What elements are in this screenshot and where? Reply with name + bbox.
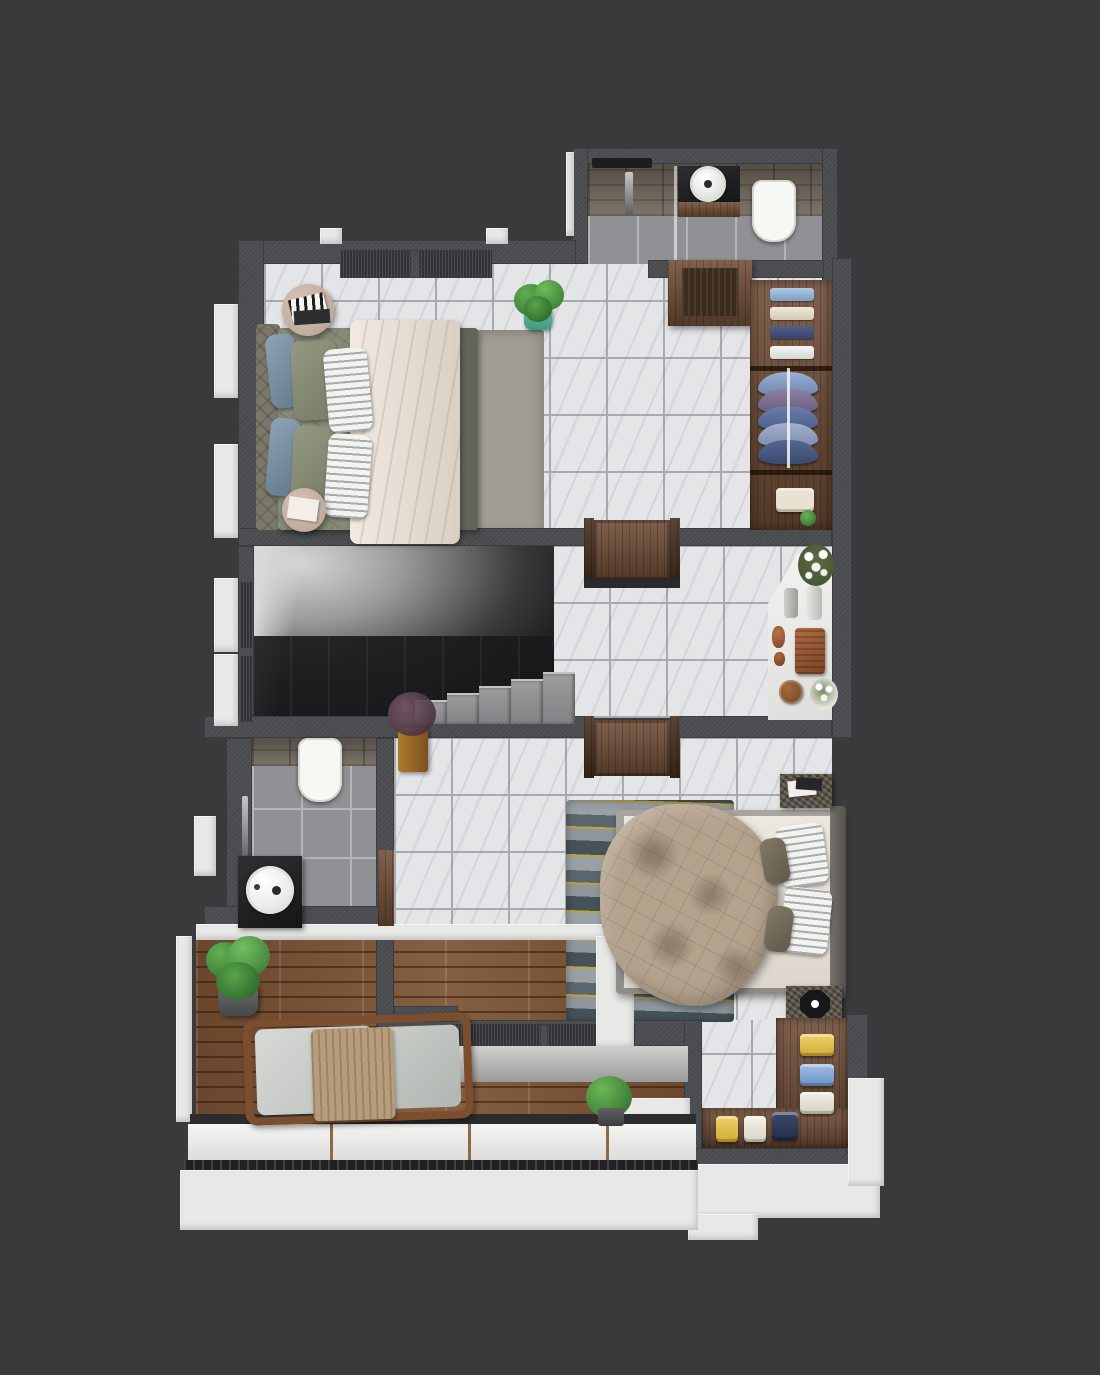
cylinder-vase-2: [784, 588, 798, 618]
door-bottom-leaf: [594, 720, 670, 776]
stair-step-3: [479, 686, 511, 724]
parapet-divider-3: [606, 1124, 609, 1162]
closet-fold-white-1: [800, 1092, 834, 1114]
door-bottom-frame-right: [670, 716, 680, 778]
toilet-top: [752, 180, 796, 242]
lounge-chair: [242, 1012, 474, 1126]
closet-fold-yellow-1: [800, 1034, 834, 1056]
dresser: [668, 260, 752, 326]
wardrobe-shelf-divider-1: [750, 366, 832, 371]
parapet-outer-ledge: [180, 1170, 698, 1230]
towel-white: [770, 346, 814, 359]
wardrobe-mini-plant: [800, 510, 816, 526]
plant1-leaf-cluster-3: [524, 296, 552, 322]
book-open: [287, 496, 320, 522]
toilet-bath2: [298, 738, 342, 802]
wardrobe-folded-stack: [776, 488, 814, 512]
ext-bottom-tongue: [688, 1214, 758, 1240]
dried-flower-cluster: [388, 692, 436, 736]
closet-fold-blue: [800, 1064, 834, 1086]
shower-rail: [592, 158, 652, 168]
closet-fold-yellow-2: [716, 1116, 738, 1142]
ext-window-frame-left-2: [214, 444, 238, 538]
door-bottom-frame-left: [584, 716, 594, 778]
dresser-inset: [682, 268, 738, 316]
ext-window-frame-left-4: [214, 654, 238, 726]
books-dark: [294, 309, 331, 325]
shower-column-top: [625, 172, 633, 216]
door-top-leaf: [594, 520, 670, 580]
terracotta-jar-small: [774, 652, 785, 666]
bed2-tan-duvet: [600, 804, 778, 1006]
wardrobe-unit: [750, 280, 832, 530]
cylinder-vase: [806, 586, 822, 620]
ext-balcony-left-edge: [176, 936, 192, 1122]
towel-cream: [770, 307, 814, 320]
door-top-frame-right: [670, 518, 680, 584]
bed1-striped-pillow-2: [323, 433, 373, 520]
stair-step-5: [543, 672, 575, 724]
towel-navy: [770, 326, 814, 339]
stair-window-sill-1: [240, 582, 252, 648]
basin-drain-top: [704, 180, 712, 188]
nightstand-book-dark: [796, 777, 823, 791]
white-flower-bunch: [798, 544, 834, 586]
towel-blue: [770, 288, 814, 301]
door-top-frame-left: [584, 518, 594, 584]
closet-fold-white-2: [744, 1116, 766, 1142]
ext-window-frame-left-3: [214, 578, 238, 652]
closet-floor: [694, 1020, 780, 1112]
ext-window-frame-top-2: [486, 228, 508, 244]
wardrobe-rail: [787, 368, 790, 468]
stair-step-4: [511, 679, 543, 724]
bed2-headboard: [830, 806, 846, 998]
terracotta-jar: [772, 626, 785, 648]
shower-column-bath2: [242, 796, 248, 856]
bath2-door-frame: [378, 850, 394, 926]
round-basin-bath2: [246, 866, 294, 914]
parapet-divider-1: [330, 1124, 333, 1162]
wardrobe-hanging-shirts: [756, 372, 824, 468]
faceted-lamp-light: [811, 1000, 819, 1008]
parapet-divider-2: [468, 1124, 471, 1162]
balcony-plant-leaves-3: [216, 962, 260, 1000]
wall-hall-top-right: [678, 528, 832, 546]
door-top-threshold: [584, 578, 680, 588]
closet-fold-navy: [772, 1112, 798, 1140]
ext-window-frame-left-5: [194, 816, 216, 876]
parapet-glass: [188, 1124, 696, 1162]
ext-window-frame-top-1: [320, 228, 342, 244]
basin-tap-bath2: [254, 884, 260, 890]
stair-step-2: [447, 693, 479, 724]
white-flower-pot: [810, 678, 838, 710]
stair-window-sill-2: [240, 656, 252, 722]
floor-plan-scene: [0, 0, 1100, 1375]
bedroom-window-mullion: [410, 250, 420, 278]
bedroom2-window-mullion: [540, 1024, 548, 1048]
wall-right-main: [832, 258, 852, 738]
vanity-drawer: [678, 202, 740, 217]
balcony-plant2-pot: [598, 1108, 624, 1126]
decor-plate: [779, 680, 803, 704]
ext-window-frame-left-1: [214, 304, 238, 398]
ext-sliver-bathroom: [566, 152, 574, 236]
terracotta-sculpture: [795, 628, 825, 674]
shower-glass-divider: [674, 166, 677, 260]
lounge-chair-throw: [311, 1027, 396, 1122]
basin-drain-bath2: [272, 886, 281, 895]
wardrobe-shelf-divider-2: [750, 470, 832, 475]
ext-right-band: [848, 1078, 884, 1186]
bed1-striped-pillow-1: [322, 346, 373, 434]
